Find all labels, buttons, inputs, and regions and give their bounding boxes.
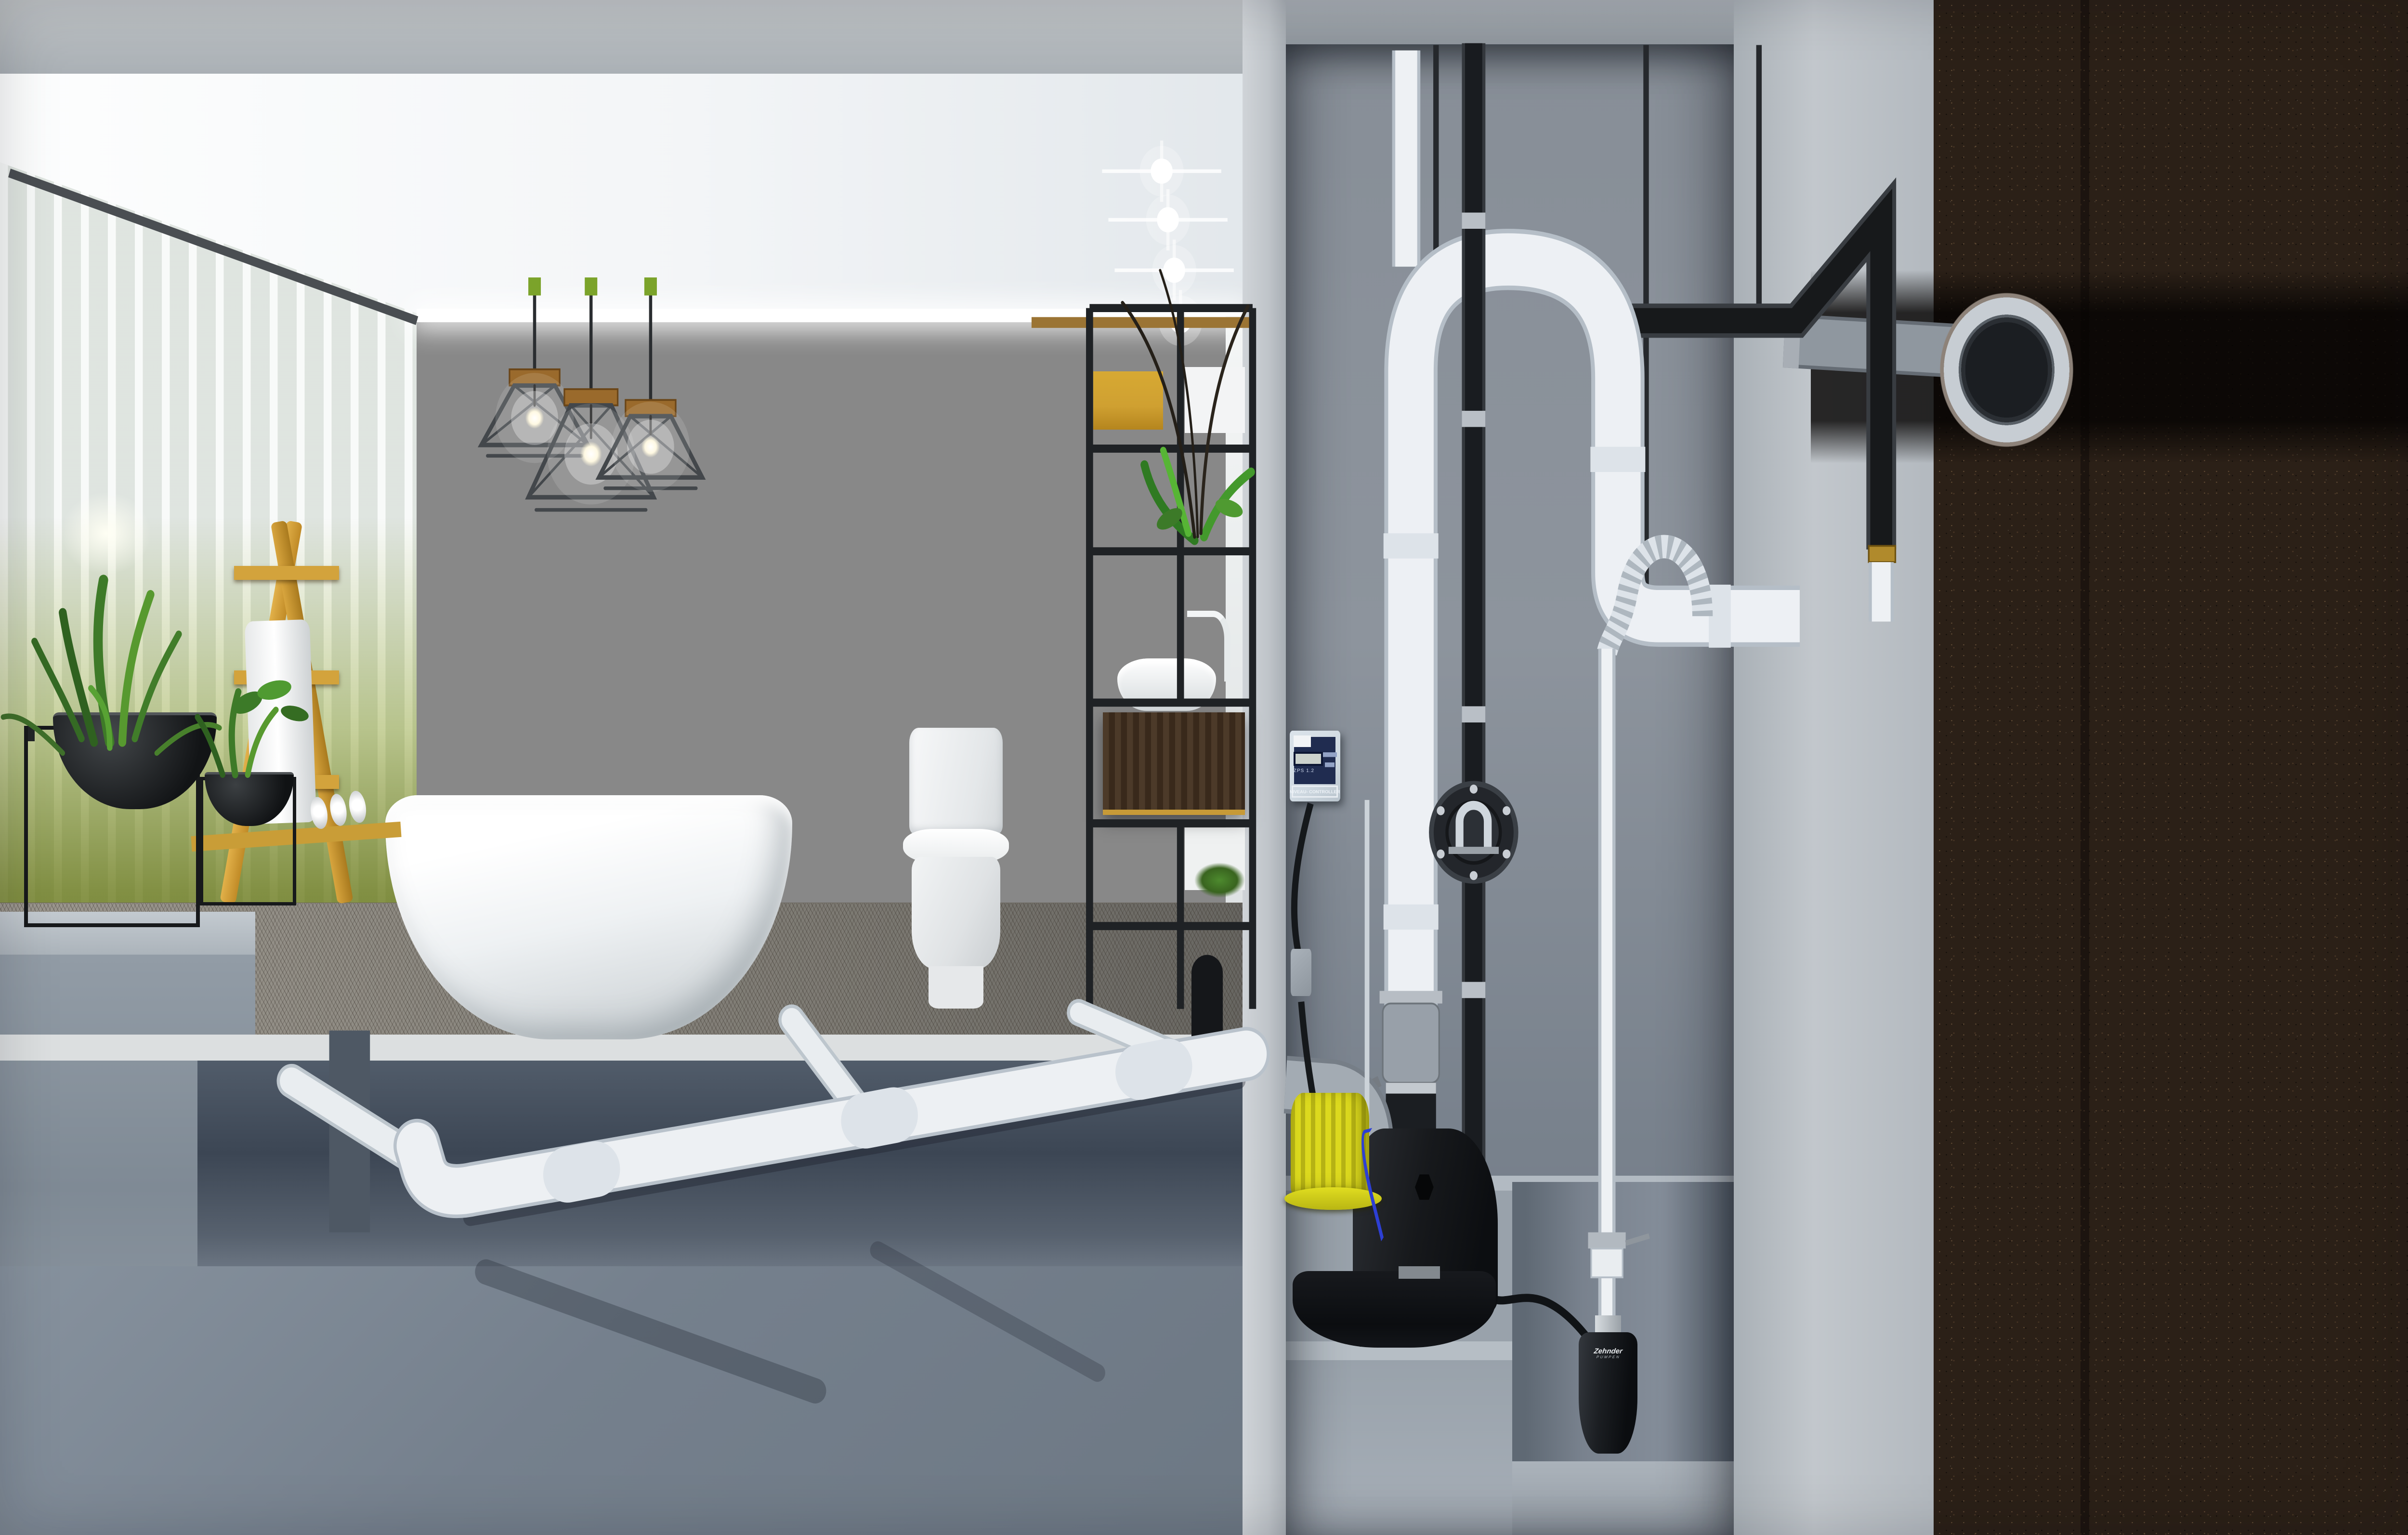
controller-buttons	[1323, 752, 1337, 774]
shelf-frame	[1032, 308, 1254, 1009]
lifting-station-motor	[1291, 1093, 1369, 1195]
bathroom-sewage-system-cutaway: ZPS 1.2 NIVEAU- CONTROLLER Zehnder PUMPE…	[0, 0, 2408, 1535]
controller-title: NIVEAU- CONTROLLER	[1290, 789, 1340, 794]
cage-pendant-lights	[481, 277, 702, 510]
plants	[3, 270, 1251, 774]
pump-outlet-fitting	[1595, 1315, 1621, 1334]
sewer-pipe-cross-section	[1924, 275, 2089, 465]
submersible-sump-pump: Zehnder PUMPEN	[1579, 1323, 1638, 1454]
pump-brand-sub: PUMPEN	[1578, 1355, 1638, 1360]
controller-model: ZPS 1.2	[1294, 768, 1314, 774]
window-frame	[10, 173, 417, 321]
sewage-lifting-station	[1291, 1093, 1498, 1348]
wall-socket	[1291, 949, 1311, 997]
underfloor-pipes	[291, 973, 1246, 1391]
controller-logo	[1294, 735, 1311, 747]
linework-overlay	[0, 0, 2408, 1535]
controller-display	[1294, 752, 1323, 766]
motor-flange	[1284, 1187, 1382, 1210]
controller-title-ribbon: NIVEAU- CONTROLLER	[1292, 786, 1338, 798]
pump-body: Zehnder PUMPEN	[1579, 1332, 1638, 1454]
pump-brand: Zehnder	[1578, 1348, 1638, 1355]
name-plate	[1399, 1266, 1440, 1279]
lifting-station-base	[1293, 1271, 1495, 1348]
pump-logo-icon	[1296, 738, 1307, 744]
check-valve	[1431, 784, 1516, 881]
level-controller: ZPS 1.2 NIVEAU- CONTROLLER	[1290, 731, 1340, 801]
